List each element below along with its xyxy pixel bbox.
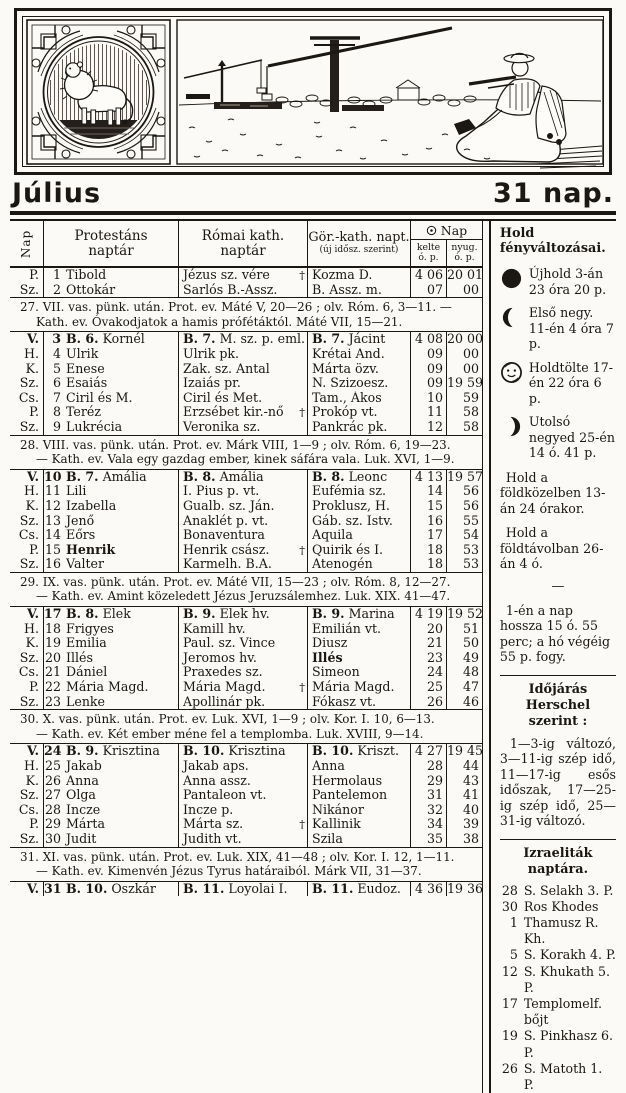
protestant-name: Frigyes — [66, 622, 114, 637]
greek-catholic-cell: Hermolaus — [307, 774, 410, 789]
week-note-line-1: 30. X. vas. pünk. után. Prot. ev. Luk. X… — [20, 712, 478, 727]
protestant-name: Valter — [66, 557, 104, 572]
sunset-time: 00 — [446, 283, 482, 298]
sunrise-time: 07 — [410, 283, 446, 298]
israelite-calendar-item: 28S. Selakh 3. P. — [500, 883, 616, 899]
sunset-time: 19 57 — [446, 470, 482, 485]
sunset-subheader: nyug. ó. p. — [446, 240, 482, 266]
greek-catholic-cell: Atenogén — [307, 557, 410, 572]
weather-title: Időjárás Herschel szerint : — [500, 682, 616, 730]
roman-catholic-cell: Henrik csász.† — [178, 543, 307, 558]
title-row: Július 31 nap. — [10, 176, 616, 209]
calendar-day-row: V.31B. 10.OszkárB. 11.Loyolai I.B. 11.Eu… — [10, 882, 482, 897]
day-length-text: 1-én a nap hossza 15 ó. 55 perc; a hó vé… — [500, 603, 616, 665]
roman-name: Incze p. — [183, 803, 233, 817]
weekday-abbr: P. — [10, 268, 43, 283]
roman-catholic-cell: Izaiás pr. — [178, 376, 307, 391]
roman-name: Izaiás pr. — [183, 376, 241, 390]
roman-catholic-cell: Ciril és Met. — [178, 391, 307, 406]
roman-catholic-cell: Jézus sz. vére† — [178, 268, 307, 283]
israelite-calendar-item: 19S. Pinkhasz 6. P. — [500, 1028, 616, 1060]
roman-column-header: Római kath. naptár — [178, 221, 307, 266]
protestant-name: Amália — [103, 470, 147, 485]
greek-catholic-cell: Simeon — [307, 665, 410, 680]
day-number: 9 — [44, 420, 61, 435]
calendar-day-row: Sz.27OlgaPantaleon vt.Pantelemon3141 — [10, 788, 482, 803]
israelite-calendar-title: Izraeliták naptára. — [500, 846, 616, 878]
fast-day-cross: † — [299, 543, 305, 558]
greek-name: Pantelemon — [312, 788, 387, 802]
protestant-name-bold: B. 10. — [66, 882, 107, 897]
israelite-day-text: Templomelf. bőjt — [524, 996, 616, 1028]
week-note-line-1: 28. VIII. vas. pünk. után. Prot. ev. Már… — [20, 438, 478, 453]
protestant-column-header: Protestáns naptár — [43, 221, 178, 266]
weekday-abbr: Sz. — [10, 695, 43, 710]
israelite-calendar-item: 5S. Korakh 4. P. — [500, 947, 616, 963]
sunset-time: 44 — [446, 759, 482, 774]
moon-phase-text: Újhold 3-án 23 óra 20 p. — [529, 266, 616, 297]
week-note-line-1: 27. VII. vas. pünk. után. Prot. ev. Máté… — [20, 300, 478, 315]
sunrise-time: 14 — [410, 484, 446, 499]
roman-name: Karmelh. B.A. — [183, 557, 272, 571]
roman-label-2: naptár — [220, 244, 265, 259]
roman-name: Apollinár pk. — [183, 695, 265, 709]
roman-catholic-cell: Márta sz.† — [178, 817, 307, 832]
sunrise-time: 4 08 — [410, 332, 446, 347]
sidebar: Hold fényváltozásai. Újhold 3-án 23 óra … — [491, 221, 616, 1093]
roman-name: Bonaventura — [183, 528, 265, 542]
sunset-time: 58 — [446, 405, 482, 420]
greek-name: Jácint — [349, 332, 386, 346]
calendar-day-row: H.11LiliI. Pius p. vt.Eufémia sz.1456 — [10, 484, 482, 499]
weekday-abbr: H. — [10, 622, 43, 637]
calendar-day-row: K.5EneseZak. sz. AntalMárta özv.0900 — [10, 362, 482, 377]
day-number: 17 — [44, 607, 61, 622]
israelite-day-number: 1 — [500, 915, 518, 947]
protestant-cell: 24B. 9.Krisztina — [43, 744, 178, 759]
day-number: 3 — [44, 332, 61, 347]
greek-catholic-cell: Eufémia sz. — [307, 484, 410, 499]
calendar-day-row: Cs.21DánielPraxedes sz.Simeon2448 — [10, 665, 482, 680]
protestant-cell: 22Mária Magd. — [43, 680, 178, 695]
protestant-cell: 3B. 6.Kornél — [43, 332, 178, 347]
sunset-time: 48 — [446, 665, 482, 680]
roman-catholic-cell: Sarlós B.-Assz. — [178, 283, 307, 298]
greek-catholic-cell: Pankrác pk. — [307, 420, 410, 435]
greek-name: Kriszt. — [357, 744, 399, 758]
protestant-name: Illés — [66, 651, 93, 666]
ground-texture — [189, 119, 490, 159]
greek-name: Quirik és I. — [312, 543, 383, 557]
roman-catholic-cell: B. 8.Amália — [178, 470, 307, 485]
greek-catholic-cell: Kallinik — [307, 817, 410, 832]
sunset-time: 56 — [446, 484, 482, 499]
greek-name: Mária Magd. — [312, 680, 395, 694]
roman-name: Mária Magd. — [183, 680, 266, 694]
greek-name: Anna — [312, 759, 345, 773]
israelite-day-number: 12 — [500, 964, 518, 996]
day-number: 15 — [44, 543, 61, 558]
protestant-cell: 14Eőrs — [43, 528, 178, 543]
calendar-day-row: Sz.9LukréciaVeronika sz.Pankrác pk.1258 — [10, 420, 482, 435]
protestant-name: Krisztina — [103, 744, 160, 759]
header-illustration — [14, 8, 612, 176]
sunrise-time: 4 27 — [410, 744, 446, 759]
sunrise-time: 4 19 — [410, 607, 446, 622]
roman-catholic-cell: B. 11.Loyolai I. — [178, 882, 307, 897]
protestant-cell: 21Dániel — [43, 665, 178, 680]
greek-catholic-cell: Prokóp vt. — [307, 405, 410, 420]
roman-catholic-cell: Incze p. — [178, 803, 307, 818]
greek-name: Proklusz, H. — [312, 499, 390, 513]
roman-name: Kamill hv. — [183, 622, 246, 636]
greek-catholic-cell: Márta özv. — [307, 362, 410, 377]
sunrise-time: 32 — [410, 803, 446, 818]
sunset-time: 55 — [446, 514, 482, 529]
roman-name: Márta sz. — [183, 817, 243, 831]
fast-day-cross: † — [299, 680, 305, 695]
day-number: 16 — [44, 557, 61, 572]
moon-phase-text: Első negy. 11-én 4 óra 7 p. — [529, 305, 616, 352]
weather-forecast-text: 1—3-ig változó, 3—11-ig szép idő, 11—17-… — [500, 736, 616, 829]
day-number: 1 — [44, 268, 61, 283]
sunset-time: 41 — [446, 788, 482, 803]
protestant-cell: 8Teréz — [43, 405, 178, 420]
sunrise-time: 17 — [410, 528, 446, 543]
column-divider — [483, 221, 491, 1093]
weekday-abbr: K. — [10, 362, 43, 377]
greek-name: Simeon — [312, 665, 360, 679]
protestant-cell: 2Ottokár — [43, 283, 178, 298]
pastoral-scene-panel — [177, 20, 603, 168]
protestant-cell: 19Emilia — [43, 636, 178, 651]
israelite-day-number: 28 — [500, 883, 518, 899]
roman-catholic-cell: B. 10.Krisztina — [178, 744, 307, 759]
moon-perigee-text: Hold a földközelben 13-án 24 órakor. — [500, 470, 616, 517]
protestant-name: Ciril és M. — [66, 391, 133, 406]
roman-catholic-cell: Jakab aps. — [178, 759, 307, 774]
day-number: 29 — [44, 817, 61, 832]
roman-name-bold: B. 10. — [183, 744, 224, 758]
weekday-abbr: Cs. — [10, 665, 43, 680]
weekday-abbr: Cs. — [10, 528, 43, 543]
roman-catholic-cell: Jeromos hv. — [178, 651, 307, 666]
sunset-time: 53 — [446, 543, 482, 558]
sunrise-time: 12 — [410, 420, 446, 435]
protestant-name: Judit — [66, 832, 96, 847]
weekday-abbr: K. — [10, 774, 43, 789]
greek-name-bold: B. 8. — [312, 470, 345, 484]
sun-group-label: Nap — [411, 221, 482, 240]
sunrise-time: 26 — [410, 695, 446, 710]
roman-catholic-cell: Zak. sz. Antal — [178, 362, 307, 377]
roman-catholic-cell: I. Pius p. vt. — [178, 484, 307, 499]
protestant-name-bold: Henrik — [66, 543, 115, 558]
roman-name: Elek hv. — [220, 607, 270, 621]
divider-dash: — — [500, 579, 616, 594]
roman-name: M. sz. p. eml. — [220, 332, 306, 346]
week-note: 27. VII. vas. pünk. után. Prot. ev. Máté… — [10, 297, 482, 332]
weekday-abbr: P. — [10, 817, 43, 832]
sunrise-time: 21 — [410, 636, 446, 651]
protestant-name: Ottokár — [66, 283, 115, 298]
moon-phase-item: Újhold 3-án 23 óra 20 p. — [500, 266, 616, 297]
roman-name: Krisztina — [228, 744, 285, 758]
greek-name: Hermolaus — [312, 774, 382, 788]
greek-sublabel: (új idősz. szerint) — [320, 245, 399, 256]
month-title: Július — [12, 179, 101, 209]
sun-icon — [426, 225, 437, 236]
roman-name: Pantaleon vt. — [183, 788, 266, 802]
day-number: 13 — [44, 514, 61, 529]
greek-name: Prokóp vt. — [312, 405, 378, 419]
weekday-abbr: P. — [10, 543, 43, 558]
roman-catholic-cell: Anaklét p. vt. — [178, 514, 307, 529]
week-note: 30. X. vas. pünk. után. Prot. ev. Luk. X… — [10, 709, 482, 744]
roman-catholic-cell: Ulrik pk. — [178, 347, 307, 362]
sunset-time: 59 — [446, 391, 482, 406]
roman-catholic-cell: Paul. sz. Vince — [178, 636, 307, 651]
greek-name: Tam., Ákos — [312, 391, 382, 405]
weekday-abbr: Sz. — [10, 788, 43, 803]
sunset-time: 38 — [446, 832, 482, 847]
protestant-name-bold: B. 7. — [66, 470, 99, 485]
sunset-time: 58 — [446, 420, 482, 435]
protestant-name-bold: B. 9. — [66, 744, 99, 759]
protestant-cell: 27Olga — [43, 788, 178, 803]
greek-catholic-cell: B. 11.Eudoz. — [307, 882, 410, 897]
roman-catholic-cell: Karmelh. B.A. — [178, 557, 307, 572]
title-rule — [10, 211, 616, 221]
greek-name-bold: B. 7. — [312, 332, 345, 346]
calendar-day-row: Sz.30JuditJudith vt.Szila3538 — [10, 832, 482, 847]
roman-label-1: Római kath. — [202, 229, 284, 244]
greek-catholic-cell: Nikánor — [307, 803, 410, 818]
sunset-time: 43 — [446, 774, 482, 789]
day-number: 25 — [44, 759, 61, 774]
protestant-name: Ulrik — [66, 347, 98, 362]
weekday-abbr: Sz. — [10, 651, 43, 666]
day-column-header: Nap — [10, 221, 43, 266]
sunrise-time: 34 — [410, 817, 446, 832]
sunset-time: 40 — [446, 803, 482, 818]
greek-catholic-cell: Proklusz, H. — [307, 499, 410, 514]
protestant-name: Jakab — [66, 759, 102, 774]
calendar-day-row: Cs.14EőrsBonaventuraAquila1754 — [10, 528, 482, 543]
sunset-time: 19 45 — [446, 744, 482, 759]
sunrise-time: 24 — [410, 665, 446, 680]
fast-day-cross: † — [299, 405, 305, 420]
moon-phase-item: Utolsó negyed 25-én 14 ó. 41 p. — [500, 414, 616, 461]
greek-catholic-cell: Aquila — [307, 528, 410, 543]
greek-name: Szila — [312, 832, 343, 846]
greek-name: Márta özv. — [312, 362, 379, 376]
roman-name: Paul. sz. Vince — [183, 636, 275, 650]
sunrise-time: 18 — [410, 543, 446, 558]
greek-catholic-cell: Illés — [307, 651, 410, 666]
calendar-day-row: P.15HenrikHenrik csász.†Quirik és I.1853 — [10, 543, 482, 558]
moon-apogee-text: Hold a földtávolban 26-án 4 ó. — [500, 525, 616, 572]
protestant-name: Enese — [66, 362, 105, 377]
protestant-name: Emilia — [66, 636, 107, 651]
protestant-name: Incze — [66, 803, 100, 818]
protestant-cell: 11Lili — [43, 484, 178, 499]
greek-catholic-cell: Szila — [307, 832, 410, 847]
weekday-abbr: Cs. — [10, 803, 43, 818]
greek-catholic-cell: B. Assz. m. — [307, 283, 410, 298]
roman-catholic-cell: Erzsébet kir.-nő† — [178, 405, 307, 420]
week-note: 31. XI. vas. pünk. után. Prot. ev. Luk. … — [10, 847, 482, 882]
calendar-day-row: V.10B. 7.AmáliaB. 8.AmáliaB. 8.Leonc4 13… — [10, 470, 482, 485]
greek-name-bold: B. 9. — [312, 607, 345, 621]
protestant-cell: 15Henrik — [43, 543, 178, 558]
almanac-page: Július 31 nap. Nap Protestáns naptár Róm… — [0, 0, 626, 900]
israelite-calendar-item: 30Ros Khodes — [500, 899, 616, 915]
greek-name: Gáb. sz. Istv. — [312, 514, 393, 528]
calendar-day-row: Sz.20IllésJeromos hv.Illés2349 — [10, 651, 482, 666]
protestant-name: Oszkár — [111, 882, 156, 897]
zodiac-leo-panel — [27, 20, 170, 164]
day-number: 22 — [44, 680, 61, 695]
weekday-abbr: V. — [10, 744, 43, 759]
roman-name: Henrik csász. — [183, 543, 269, 557]
moon-phase-item: Első negy. 11-én 4 óra 7 p. — [500, 305, 616, 352]
calendar-day-row: K.19EmiliaPaul. sz. VinceDiusz2150 — [10, 636, 482, 651]
greek-name: N. Szizoesz. — [312, 376, 388, 390]
israelite-day-number: 26 — [500, 1061, 518, 1093]
sunset-time: 56 — [446, 499, 482, 514]
sidebar-rule-2 — [500, 839, 616, 840]
calendar-day-row: Sz.2OttokárSarlós B.-Assz.B. Assz. m.070… — [10, 283, 482, 298]
israelite-day-text: S. Pinkhasz 6. P. — [524, 1028, 616, 1060]
sunset-time: 47 — [446, 680, 482, 695]
roman-name-bold: B. 9. — [183, 607, 216, 621]
protestant-name: Lukrécia — [66, 420, 122, 435]
protestant-cell: 13Jenő — [43, 514, 178, 529]
greek-name: Fókasz vt. — [312, 695, 376, 709]
flute — [469, 77, 516, 84]
calendar-day-row: Cs.7Ciril és M.Ciril és Met.Tam., Ákos10… — [10, 391, 482, 406]
weekday-abbr: Sz. — [10, 557, 43, 572]
greek-name: Eudoz. — [357, 882, 401, 896]
protestant-name-bold: B. 6. — [66, 332, 99, 347]
greek-catholic-cell: B. 10.Kriszt. — [307, 744, 410, 759]
day-number: 20 — [44, 651, 61, 666]
protestant-name: Esaiás — [66, 376, 107, 391]
day-column-label: Nap — [20, 229, 34, 257]
israelite-day-number: 5 — [500, 947, 518, 963]
roman-name: Erzsébet kir.-nő — [183, 405, 284, 419]
sunset-time: 20 00 — [446, 332, 482, 347]
sunset-time: 19 36 — [446, 882, 482, 897]
roman-name: Anaklét p. vt. — [183, 514, 268, 528]
sunset-time: 53 — [446, 557, 482, 572]
shepherd-figure — [454, 53, 602, 168]
sunset-time: 49 — [446, 651, 482, 666]
roman-catholic-cell: Apollinár pk. — [178, 695, 307, 710]
calendar-day-row: V.17B. 8.ElekB. 9.Elek hv.B. 9.Marina4 1… — [10, 607, 482, 622]
israelite-day-text: Thamusz R. Kh. — [524, 915, 616, 947]
protestant-name: Teréz — [66, 405, 101, 420]
protestant-label-2: naptár — [88, 244, 133, 259]
greek-name-bold: B. 10. — [312, 744, 353, 758]
protestant-cell: 1Tibold — [43, 268, 178, 283]
day-number: 8 — [44, 405, 61, 420]
roman-name: Jakab aps. — [183, 759, 249, 773]
weekday-abbr: Sz. — [10, 832, 43, 847]
weekday-abbr: Sz. — [10, 376, 43, 391]
full-moon-icon — [500, 361, 523, 384]
greek-catholic-cell: Pantelemon — [307, 788, 410, 803]
sunset-time: 19 52 — [446, 607, 482, 622]
sunset-time: 20 01 — [446, 268, 482, 283]
greek-name: Emilián vt. — [312, 622, 381, 636]
greek-name: Leonc — [349, 470, 388, 484]
sunrise-time: 25 — [410, 680, 446, 695]
day-number: 14 — [44, 528, 61, 543]
greek-name: Kallinik — [312, 817, 361, 831]
sunrise-subheader: kelte ó. p. — [411, 240, 446, 266]
moon-phase-text: Utolsó negyed 25-én 14 ó. 41 p. — [529, 414, 616, 461]
israelite-calendar-list: 28S. Selakh 3. P.30Ros Khodes1Thamusz R.… — [500, 883, 616, 1093]
roman-catholic-cell: Bonaventura — [178, 528, 307, 543]
protestant-cell: 26Anna — [43, 774, 178, 789]
roman-catholic-cell: Mária Magd.† — [178, 680, 307, 695]
weekday-abbr: H. — [10, 347, 43, 362]
roman-catholic-cell: Anna assz. — [178, 774, 307, 789]
roman-name: Ulrik pk. — [183, 347, 239, 361]
protestant-label-1: Protestáns — [74, 229, 147, 244]
moon-phases-title: Hold fényváltozásai. — [500, 223, 616, 258]
protestant-cell: 4Ulrik — [43, 347, 178, 362]
greek-catholic-cell: Mária Magd. — [307, 680, 410, 695]
sunrise-units: ó. p. — [418, 253, 438, 264]
protestant-cell: 18Frigyes — [43, 622, 178, 637]
day-number: 19 — [44, 636, 61, 651]
day-number: 27 — [44, 788, 61, 803]
weekday-abbr: V. — [10, 332, 43, 347]
day-number: 7 — [44, 391, 61, 406]
weekday-abbr: V. — [10, 470, 43, 485]
protestant-cell: 12Izabella — [43, 499, 178, 514]
protestant-cell: 29Márta — [43, 817, 178, 832]
greek-name-bold: Illés — [312, 651, 343, 665]
calendar-day-row: Sz.23LenkeApollinár pk.Fókasz vt.2646 — [10, 695, 482, 710]
protestant-cell: 5Enese — [43, 362, 178, 377]
greek-name: Eufémia sz. — [312, 484, 386, 498]
calendar-day-row: V.24B. 9.KrisztinaB. 10.KrisztinaB. 10.K… — [10, 744, 482, 759]
protestant-name: Elek — [103, 607, 131, 622]
roman-catholic-cell: Veronika sz. — [178, 420, 307, 435]
greek-name: Nikánor — [312, 803, 364, 817]
protestant-cell: 17B. 8.Elek — [43, 607, 178, 622]
fast-day-cross: † — [299, 817, 305, 832]
week-note-line-1: 31. XI. vas. pünk. után. Prot. ev. Luk. … — [20, 850, 478, 865]
week-note-line-2: — Kath. ev. Két ember méne fel a templom… — [20, 727, 478, 742]
day-number: 30 — [44, 832, 61, 847]
sunrise-time: 4 13 — [410, 470, 446, 485]
protestant-name: Mária Magd. — [66, 680, 149, 695]
protestant-name: Kornél — [103, 332, 145, 347]
calendar-day-row: H.25JakabJakab aps.Anna2844 — [10, 759, 482, 774]
greek-name-bold: B. 11. — [312, 882, 353, 896]
calendar-table: Nap Protestáns naptár Római kath. naptár… — [10, 221, 483, 1093]
weekday-abbr: Sz. — [10, 514, 43, 529]
main-content: Nap Protestáns naptár Római kath. naptár… — [10, 221, 616, 1093]
calendar-day-row: Sz.16ValterKarmelh. B.A.Atenogén1853 — [10, 557, 482, 572]
calendar-day-row: H.4UlrikUlrik pk.Krétai And.0900 — [10, 347, 482, 362]
protestant-cell: 9Lukrécia — [43, 420, 178, 435]
